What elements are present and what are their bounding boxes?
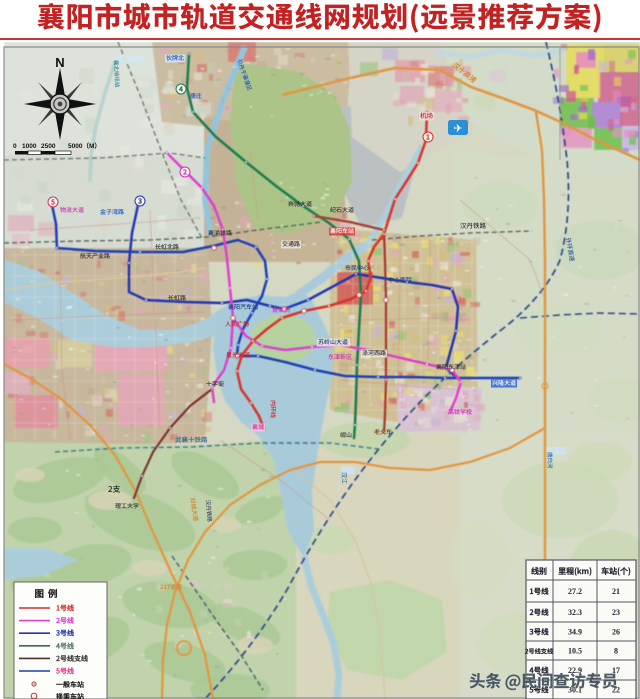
svg-text:车站(个): 车站(个) bbox=[601, 566, 631, 577]
svg-text:217省道: 217省道 bbox=[160, 582, 182, 591]
svg-text:航天产业路: 航天产业路 bbox=[80, 251, 110, 260]
svg-text:1号线: 1号线 bbox=[56, 604, 74, 614]
svg-text:2号线: 2号线 bbox=[529, 607, 549, 618]
svg-text:唐白河: 唐白河 bbox=[546, 452, 554, 469]
svg-text:4: 4 bbox=[178, 84, 183, 94]
svg-text:8: 8 bbox=[614, 647, 618, 656]
svg-text:市民中心: 市民中心 bbox=[345, 263, 369, 272]
svg-text:换乘车站: 换乘车站 bbox=[56, 692, 84, 699]
svg-text:汉丹铁路: 汉丹铁路 bbox=[460, 220, 487, 230]
svg-text:3号线: 3号线 bbox=[56, 629, 74, 639]
svg-text:东津新区: 东津新区 bbox=[328, 352, 352, 361]
svg-text:苏岭山大道: 苏岭山大道 bbox=[318, 337, 348, 346]
svg-text:星光大道: 星光大道 bbox=[226, 350, 250, 359]
svg-text:金子湾路: 金子湾路 bbox=[100, 207, 124, 216]
svg-text:老火车: 老火车 bbox=[374, 427, 392, 436]
svg-text:3号线: 3号线 bbox=[529, 627, 549, 638]
svg-text:人民广场: 人民广场 bbox=[225, 319, 249, 328]
svg-text:2500: 2500 bbox=[41, 143, 56, 150]
svg-text:32.3: 32.3 bbox=[568, 608, 582, 617]
svg-text:0: 0 bbox=[13, 143, 17, 150]
svg-text:2号线: 2号线 bbox=[56, 616, 74, 626]
svg-text:1: 1 bbox=[426, 132, 430, 142]
svg-text:伙牌北: 伙牌北 bbox=[166, 53, 184, 62]
svg-text:襄阳东津站: 襄阳东津站 bbox=[436, 362, 466, 371]
svg-text:23: 23 bbox=[612, 608, 620, 617]
svg-text:理工大学: 理工大学 bbox=[115, 501, 139, 510]
svg-text:5号线: 5号线 bbox=[55, 667, 74, 677]
svg-text:1号线: 1号线 bbox=[529, 586, 549, 597]
svg-text:线别: 线别 bbox=[531, 566, 547, 577]
svg-text:岘山: 岘山 bbox=[340, 430, 352, 439]
svg-text:武襄十铁路: 武襄十铁路 bbox=[175, 434, 208, 444]
svg-text:汉江: 汉江 bbox=[340, 472, 349, 484]
svg-text:4号线: 4号线 bbox=[55, 641, 74, 651]
svg-text:兴隆大道: 兴隆大道 bbox=[492, 378, 516, 387]
svg-text:襄城: 襄城 bbox=[252, 422, 264, 431]
svg-text:长虹北路: 长虹北路 bbox=[155, 242, 179, 251]
svg-text:奔驰大道: 奔驰大道 bbox=[288, 199, 312, 208]
svg-text:唐庄: 唐庄 bbox=[190, 91, 202, 100]
svg-text:2: 2 bbox=[183, 167, 187, 177]
svg-text:✈: ✈ bbox=[453, 120, 462, 136]
svg-text:27.2: 27.2 bbox=[568, 587, 582, 596]
svg-text:里程(km): 里程(km) bbox=[558, 566, 592, 577]
svg-text:长虹路: 长虹路 bbox=[168, 293, 186, 302]
svg-text:21: 21 bbox=[612, 587, 620, 596]
svg-text:头条 @民间查访专员: 头条 @民间查访专员 bbox=[469, 668, 618, 692]
svg-text:26: 26 bbox=[612, 628, 620, 637]
svg-text:内环线: 内环线 bbox=[269, 400, 278, 418]
svg-text:1000: 1000 bbox=[22, 143, 37, 150]
svg-text:N: N bbox=[55, 55, 64, 70]
svg-text:交通路: 交通路 bbox=[282, 239, 300, 248]
svg-text:5000（M）: 5000（M） bbox=[68, 142, 101, 150]
svg-text:2号线支线: 2号线支线 bbox=[56, 654, 88, 664]
svg-text:5: 5 bbox=[50, 197, 55, 207]
svg-text:中心医院: 中心医院 bbox=[388, 275, 412, 284]
svg-text:物流大道: 物流大道 bbox=[60, 205, 84, 214]
svg-text:涤河西路: 涤河西路 bbox=[362, 348, 386, 357]
svg-text:图例: 图例 bbox=[34, 586, 61, 600]
svg-text:一般车站: 一般车站 bbox=[56, 680, 84, 690]
svg-text:襄渝铁路: 襄渝铁路 bbox=[208, 228, 232, 237]
svg-text:襄阳汽车站: 襄阳汽车站 bbox=[228, 302, 258, 311]
svg-text:10.5: 10.5 bbox=[568, 647, 582, 656]
svg-text:高铁学校: 高铁学校 bbox=[448, 407, 472, 416]
svg-text:34.9: 34.9 bbox=[568, 628, 582, 637]
svg-text:3: 3 bbox=[138, 196, 142, 206]
svg-text:襄北编组站: 襄北编组站 bbox=[112, 60, 121, 88]
svg-text:2号线支线: 2号线支线 bbox=[525, 647, 554, 656]
svg-text:鱼梁洲: 鱼梁洲 bbox=[272, 305, 290, 314]
svg-text:机场: 机场 bbox=[420, 110, 434, 120]
svg-text:2支: 2支 bbox=[108, 484, 121, 495]
svg-text:襄阳车站: 襄阳车站 bbox=[330, 226, 354, 235]
svg-text:十字街: 十字街 bbox=[206, 379, 224, 388]
svg-text:纪石大道: 纪石大道 bbox=[330, 205, 354, 214]
